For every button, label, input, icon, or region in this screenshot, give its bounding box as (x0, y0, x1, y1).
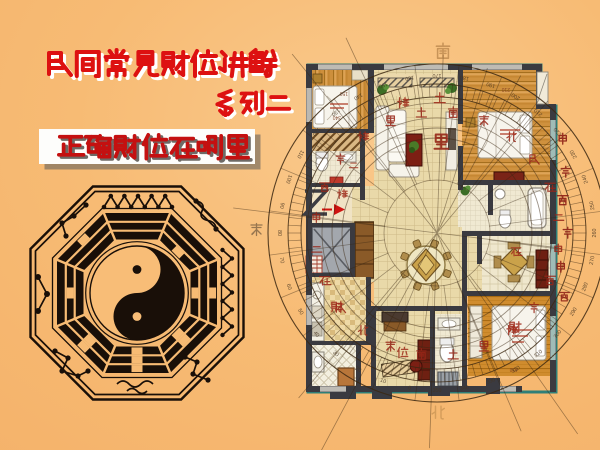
svg-text:80: 80 (276, 230, 282, 236)
svg-text:350: 350 (433, 388, 442, 394)
svg-text:90: 90 (278, 202, 285, 209)
svg-text:260: 260 (592, 229, 598, 238)
svg-text:210: 210 (501, 86, 510, 92)
svg-text:150: 150 (339, 90, 348, 96)
svg-text:170: 170 (433, 72, 442, 78)
svg-text:70: 70 (278, 257, 285, 264)
